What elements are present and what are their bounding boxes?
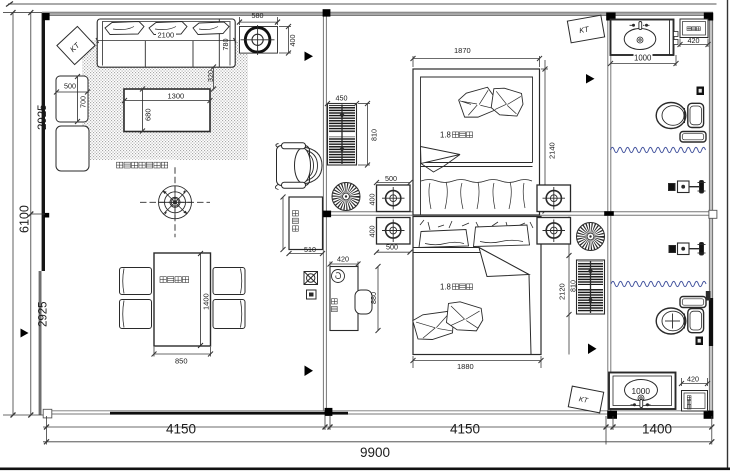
svg-text:400: 400 — [288, 35, 297, 47]
svg-text:500: 500 — [386, 243, 398, 252]
svg-text:1000: 1000 — [632, 386, 651, 396]
svg-text:4150: 4150 — [450, 422, 480, 437]
svg-text:420: 420 — [688, 36, 700, 45]
svg-text:700: 700 — [79, 96, 88, 108]
svg-text:500: 500 — [64, 82, 76, 91]
svg-text:4150: 4150 — [166, 422, 196, 437]
svg-text:1.8: 1.8 — [440, 283, 451, 292]
svg-text:1880: 1880 — [457, 362, 474, 371]
svg-text:420: 420 — [337, 255, 349, 264]
svg-text:780: 780 — [221, 39, 230, 51]
svg-text:400: 400 — [368, 226, 377, 238]
svg-text:810: 810 — [370, 129, 379, 141]
svg-text:1.8: 1.8 — [440, 131, 451, 140]
svg-text:680: 680 — [144, 108, 153, 121]
svg-text:2925: 2925 — [38, 301, 50, 327]
svg-text:1400: 1400 — [642, 422, 672, 437]
svg-text:1000: 1000 — [634, 53, 652, 62]
svg-text:6100: 6100 — [18, 205, 32, 233]
svg-text:1870: 1870 — [454, 46, 471, 55]
svg-text:500: 500 — [385, 174, 397, 183]
svg-text:580: 580 — [252, 11, 264, 20]
svg-text:880: 880 — [369, 292, 378, 304]
svg-text:2140: 2140 — [548, 142, 557, 159]
svg-text:450: 450 — [336, 94, 348, 103]
svg-text:420: 420 — [687, 375, 699, 384]
svg-text:9900: 9900 — [360, 445, 390, 460]
svg-text:1300: 1300 — [168, 92, 185, 101]
svg-text:510: 510 — [304, 245, 316, 254]
svg-text:320: 320 — [206, 70, 215, 82]
svg-text:2120: 2120 — [558, 283, 567, 300]
svg-text:850: 850 — [175, 357, 188, 366]
svg-text:400: 400 — [368, 194, 377, 206]
svg-text:2100: 2100 — [158, 31, 175, 40]
svg-text:2925: 2925 — [37, 104, 49, 130]
svg-text:1400: 1400 — [202, 293, 211, 310]
